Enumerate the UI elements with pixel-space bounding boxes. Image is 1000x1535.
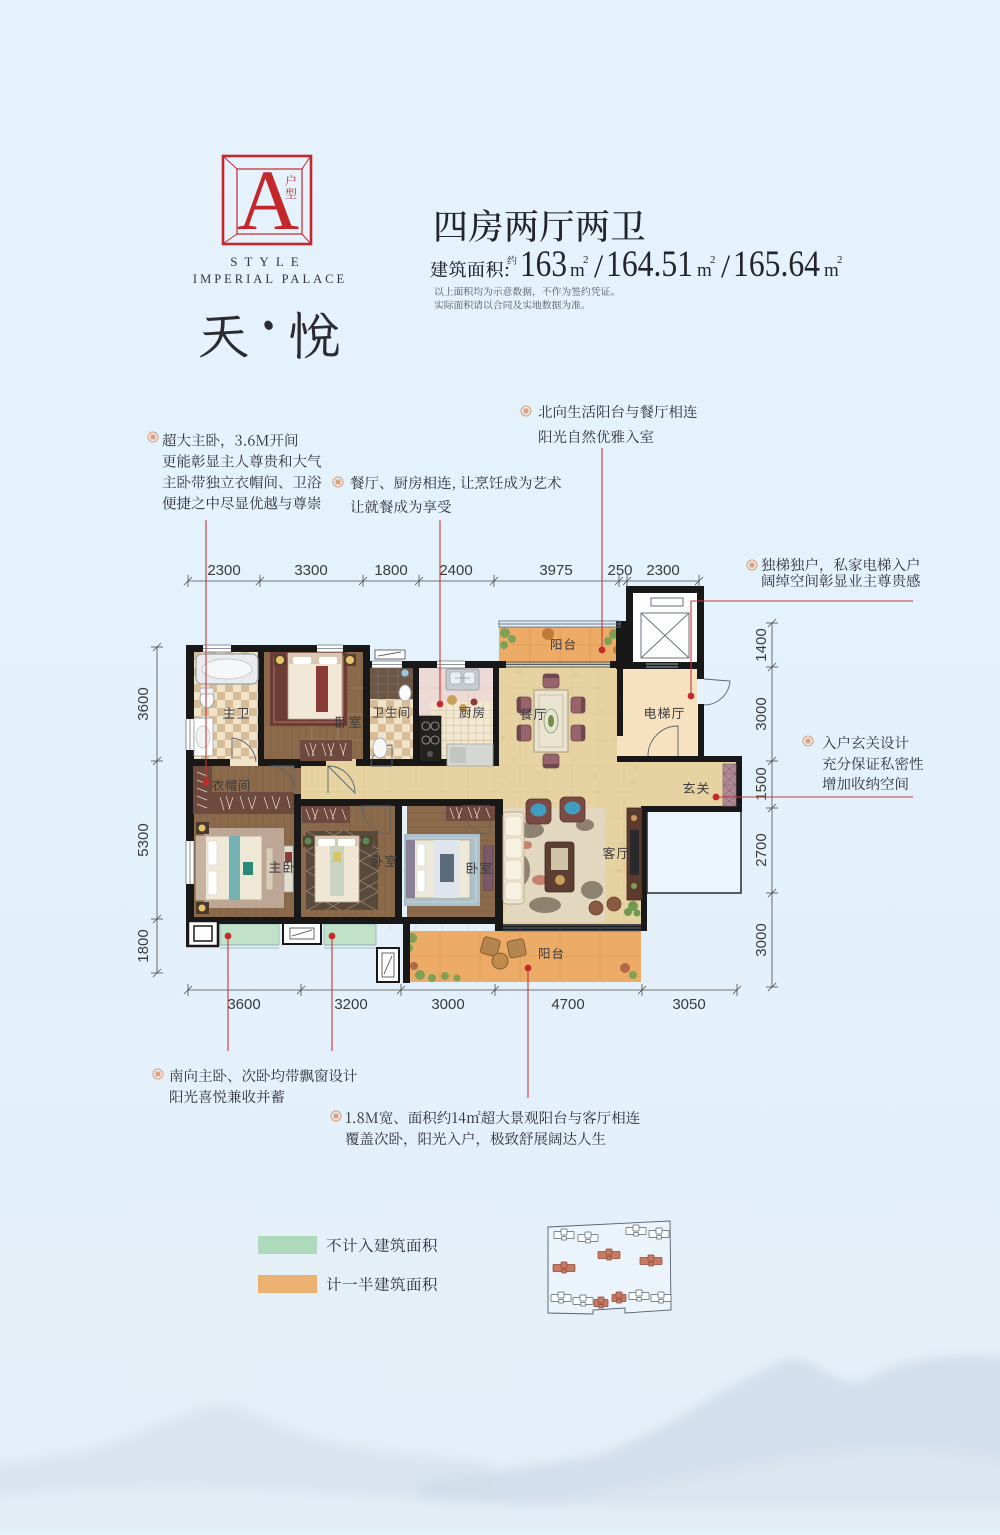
- svg-text:3300: 3300: [294, 562, 327, 579]
- svg-text:1500: 1500: [753, 767, 770, 800]
- svg-text:/: /: [721, 249, 731, 285]
- svg-text:2: 2: [583, 254, 589, 266]
- svg-text:3200: 3200: [334, 996, 367, 1013]
- svg-text:250: 250: [607, 562, 632, 579]
- svg-text:1400: 1400: [753, 628, 770, 661]
- svg-text:3975: 3975: [539, 562, 572, 579]
- svg-text:3600: 3600: [135, 687, 152, 720]
- svg-text:5300: 5300: [135, 823, 152, 856]
- svg-text:2400: 2400: [439, 562, 472, 579]
- svg-text:165.64: 165.64: [733, 244, 820, 285]
- svg-text:2300: 2300: [207, 562, 240, 579]
- svg-text:3000: 3000: [431, 996, 464, 1013]
- svg-text:1800: 1800: [135, 929, 152, 962]
- svg-text:3600: 3600: [227, 996, 260, 1013]
- svg-text:2: 2: [710, 254, 716, 266]
- svg-text:A: A: [237, 152, 299, 248]
- svg-text:2300: 2300: [646, 562, 679, 579]
- svg-text:2: 2: [837, 254, 843, 266]
- svg-text:2700: 2700: [753, 833, 770, 866]
- svg-text:/: /: [594, 249, 604, 285]
- svg-text:164.51: 164.51: [606, 244, 693, 285]
- svg-text:3000: 3000: [753, 697, 770, 730]
- svg-text:163: 163: [520, 244, 567, 285]
- svg-text:STYLE: STYLE: [230, 254, 305, 269]
- svg-text:4700: 4700: [551, 996, 584, 1013]
- svg-text:IMPERIAL PALACE: IMPERIAL PALACE: [193, 272, 347, 286]
- svg-text:1800: 1800: [374, 562, 407, 579]
- svg-text:3000: 3000: [753, 923, 770, 956]
- svg-text:3050: 3050: [672, 996, 705, 1013]
